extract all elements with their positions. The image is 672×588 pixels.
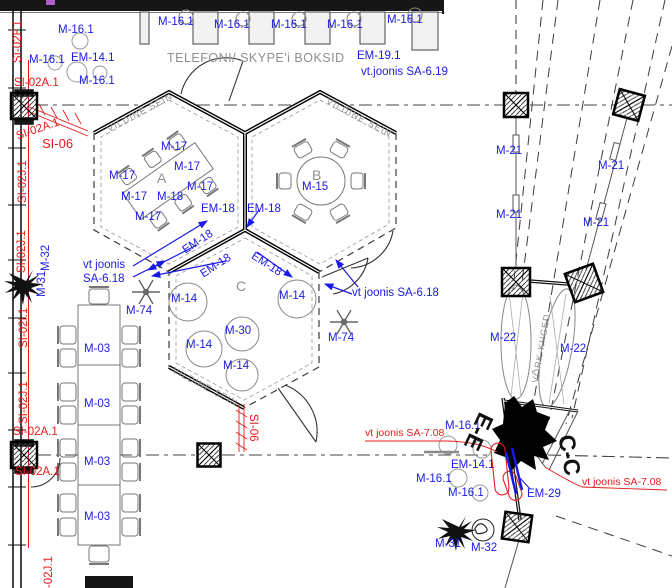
label-em-18: EM-18: [181, 229, 216, 257]
label-m-17: M-17: [121, 192, 147, 204]
label-m-30: M-30: [225, 326, 251, 338]
label-m-22: M-22: [560, 344, 586, 356]
label-m-74: M-74: [328, 333, 354, 345]
label-si-02a-1: SI-02A.1: [13, 427, 58, 439]
label-telefoni-skype-i-boksid: TELEFONI/ SKYPE'i BOKSID: [167, 52, 345, 65]
label-m-17: M-17: [135, 212, 161, 224]
label-m-14: M-14: [223, 361, 249, 373]
label-m-16-1: M-16.1: [387, 15, 423, 27]
label-si-02j-1: SI-02J.1: [17, 230, 29, 273]
label-em-14-1: EM-14.1: [71, 53, 114, 65]
label-si-02f-1: SI-02F.1: [13, 20, 25, 63]
label-vildine-sein: VILDINE SEIN: [106, 92, 175, 134]
label-m-21: M-21: [598, 161, 624, 173]
label-si-02a-1: SI-02A.1: [14, 78, 59, 90]
label-m-16-1: M-16.1: [271, 20, 307, 32]
labels-layer: M-16.1M-16.1M-16.1M-16.1M-16.1M-16.1M-16…: [0, 0, 672, 588]
label-m-17: M-17: [161, 142, 187, 154]
label-e-e: E-E: [460, 409, 497, 453]
label-m-16-1: M-16.1: [79, 76, 115, 88]
label-c: C: [236, 279, 246, 293]
label-m-17: M-17: [187, 182, 213, 194]
label-si-02i-1: SI-02I.1: [19, 308, 31, 348]
label-m-03: M-03: [84, 399, 110, 411]
label-m-16-1: M-16.1: [448, 488, 484, 500]
label-m-18: M-18: [157, 192, 183, 204]
label-m-17: M-17: [174, 162, 200, 174]
label-em-29: EM-29: [527, 489, 561, 501]
label-m-03: M-03: [84, 457, 110, 469]
label-m-16-1: M-16.1: [29, 55, 65, 67]
label-vt-joonis: vt joonis: [83, 260, 125, 272]
label-m-16-1: M-16.1: [214, 20, 250, 32]
label-em-19-1: EM-19.1: [357, 51, 400, 63]
label-m-16-1: M-16.1: [416, 474, 452, 486]
label-a: A: [157, 171, 166, 185]
label-vt-joonis-sa-6-19: vt.joonis SA-6.19: [361, 67, 448, 79]
label-m-16-1: M-16.1: [158, 17, 194, 29]
label-vildine-sein: VILDINE SEIN: [325, 97, 394, 139]
label-m-14: M-14: [186, 340, 212, 352]
label-em-14-1: EM-14.1: [451, 460, 494, 472]
label-vt-joonis-sa-7-08: vt joonis SA-7.08: [582, 477, 661, 488]
label-c-c: C-C: [554, 433, 584, 477]
label-m-31: M-31: [435, 539, 461, 551]
label-vt-joonis-sa-6-18: vt joonis SA-6.18: [352, 288, 439, 300]
label-m-14: M-14: [171, 294, 197, 306]
label-m-21: M-21: [583, 218, 609, 230]
label-b: B: [312, 168, 321, 182]
floorplan-canvas: M-16.1M-16.1M-16.1M-16.1M-16.1M-16.1M-16…: [0, 0, 672, 588]
label-m-74: M-74: [126, 306, 152, 318]
label-si-02j-1: SI-02J.1: [18, 160, 30, 203]
label-m-03: M-03: [84, 344, 110, 356]
label-m-03: M-03: [84, 512, 110, 524]
label-m-31: M-31: [37, 271, 49, 297]
label-si-02a-1: SI-02A.1: [15, 467, 60, 479]
label-si-02j-1: SI-02J.1: [19, 381, 31, 424]
label-m-17: M-17: [109, 171, 135, 183]
label-m-16-1: M-16.1: [327, 20, 363, 32]
label-m-21: M-21: [496, 210, 522, 222]
label-si-06: SI-06: [42, 137, 73, 150]
label-si-06: SI-06: [247, 414, 259, 442]
label-em-18: EM-18: [201, 204, 235, 216]
label-em-18: EM-18: [199, 253, 234, 281]
label-si-02j-1: SI-02J.1: [44, 556, 56, 588]
label-m-32: M-32: [41, 245, 53, 271]
label-m-15: M-15: [302, 182, 328, 194]
label-vt-joonis-sa-7-08: vt joonis SA-7.08: [365, 428, 444, 439]
label-m-22: M-22: [490, 333, 516, 345]
label-m-16-1: M-16.1: [58, 25, 94, 37]
label-m-32: M-32: [471, 543, 497, 555]
label-m-14: M-14: [279, 291, 305, 303]
label-m-21: M-21: [496, 146, 522, 158]
label-v-rk-kiiged: VÕRK-KIIGED: [531, 313, 552, 384]
label-em-18: EM-18: [249, 251, 284, 279]
label-em-18: EM-18: [247, 204, 281, 216]
label-sa-6-18: SA-6.18: [83, 274, 125, 286]
